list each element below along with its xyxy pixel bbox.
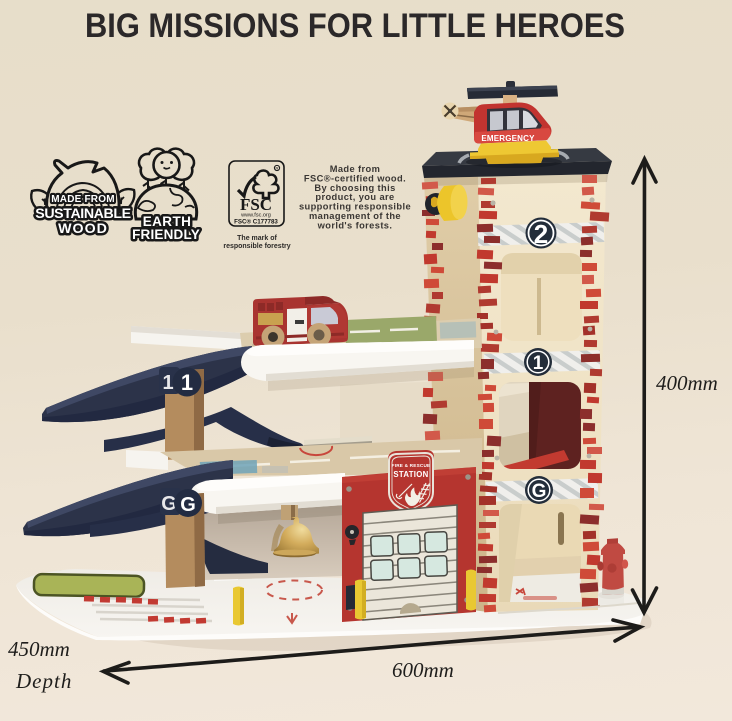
svg-text:The mark of: The mark of	[237, 235, 277, 242]
svg-text:responsible forestry: responsible forestry	[223, 243, 290, 250]
svg-text:FRIENDLY: FRIENDLY	[132, 227, 200, 242]
svg-text:FSC: FSC	[240, 195, 272, 214]
svg-text:FIRE & RESCUE: FIRE & RESCUE	[392, 463, 431, 468]
svg-text:G: G	[532, 481, 547, 502]
svg-text:FSC® C177783: FSC® C177783	[234, 219, 278, 226]
svg-text:1: 1	[533, 353, 544, 374]
svg-text:G: G	[180, 494, 196, 516]
svg-text:SUSTAINABLE: SUSTAINABLE	[35, 206, 130, 222]
svg-text:2: 2	[534, 219, 548, 249]
svg-text:STATION: STATION	[393, 470, 428, 479]
svg-text:MADE FROM: MADE FROM	[51, 194, 114, 205]
svg-text:BIG MISSIONS FOR LITTLE HEROES: BIG MISSIONS FOR LITTLE HEROES	[85, 7, 625, 45]
svg-text:400mm: 400mm	[656, 371, 718, 395]
svg-text:Depth: Depth	[15, 669, 72, 693]
svg-text:600mm: 600mm	[392, 658, 454, 682]
svg-text:1: 1	[181, 370, 193, 395]
svg-text:450mm: 450mm	[8, 637, 70, 661]
svg-text:world's forests.: world's forests.	[317, 220, 393, 230]
svg-text:WOOD: WOOD	[58, 221, 108, 237]
svg-text:1: 1	[162, 372, 173, 394]
